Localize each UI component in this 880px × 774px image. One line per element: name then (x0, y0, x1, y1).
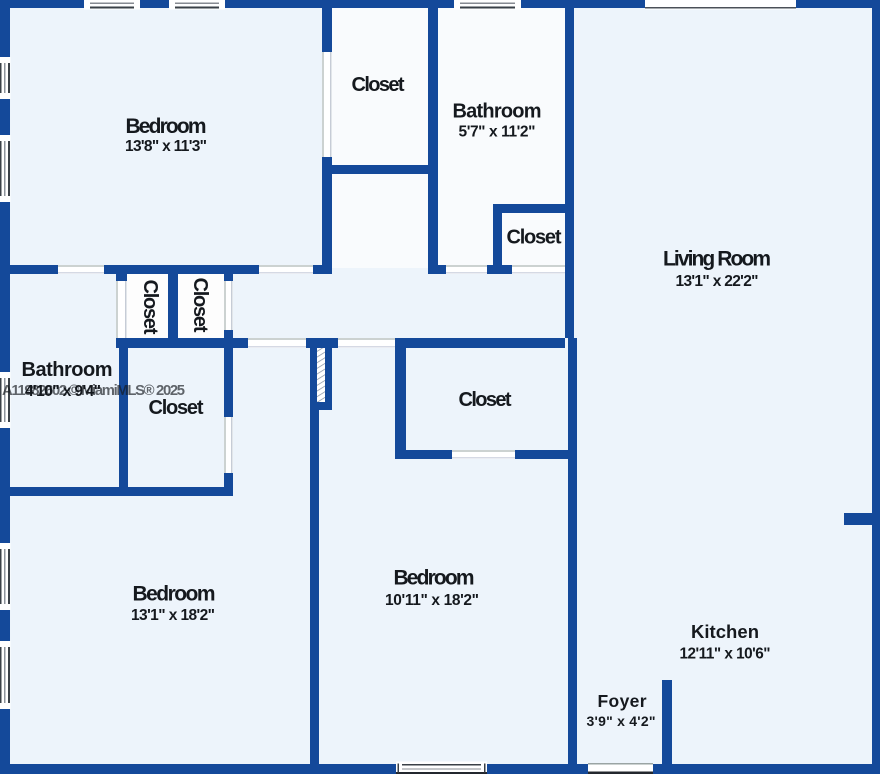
svg-text:Living Room: Living Room (663, 248, 771, 271)
svg-text:A11982602 © MiamiMLS® 2025: A11982602 © MiamiMLS® 2025 (2, 383, 185, 399)
svg-text:5'7" x 11'2": 5'7" x 11'2" (459, 124, 536, 141)
svg-text:12'11" x 10'6": 12'11" x 10'6" (680, 646, 771, 663)
svg-text:13'8" x 11'3": 13'8" x 11'3" (125, 138, 207, 155)
svg-text:Closet: Closet (507, 227, 562, 249)
svg-text:3'9" x 4'2": 3'9" x 4'2" (587, 713, 656, 729)
svg-text:Foyer: Foyer (598, 691, 647, 711)
svg-text:Closet: Closet (352, 74, 405, 96)
svg-text:10'11" x 18'2": 10'11" x 18'2" (385, 592, 479, 609)
svg-text:Bedroom: Bedroom (394, 567, 475, 590)
svg-text:13'1" x 18'2": 13'1" x 18'2" (131, 607, 215, 624)
svg-text:Bathroom: Bathroom (22, 359, 113, 381)
svg-text:Closet: Closet (189, 278, 211, 333)
svg-text:Bedroom: Bedroom (133, 583, 216, 606)
svg-text:Kitchen: Kitchen (691, 621, 759, 642)
svg-text:Bathroom: Bathroom (453, 101, 542, 123)
svg-text:Closet: Closet (139, 280, 161, 335)
svg-text:13'1" x 22'2": 13'1" x 22'2" (676, 273, 759, 290)
svg-text:Closet: Closet (149, 397, 204, 419)
svg-text:Bedroom: Bedroom (126, 115, 207, 138)
svg-text:Closet: Closet (459, 389, 512, 411)
